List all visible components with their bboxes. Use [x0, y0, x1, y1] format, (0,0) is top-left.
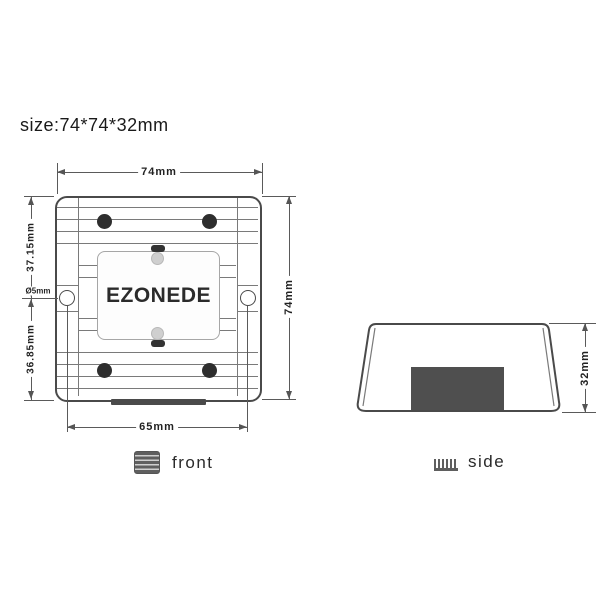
- dim-overall-depth: 32mm: [579, 347, 591, 389]
- side-view-icon: [434, 459, 458, 471]
- arrow-down-icon: [582, 404, 588, 412]
- dimension-diagram: size:74*74*32mm EZONEDE 74mm: [0, 0, 600, 600]
- extension-line: [549, 323, 596, 324]
- arrow-up-icon: [582, 323, 588, 331]
- extension-line: [562, 412, 596, 413]
- side-connector-block: [411, 367, 504, 410]
- side-view-drawing: [0, 0, 600, 600]
- side-caption: side: [468, 452, 505, 472]
